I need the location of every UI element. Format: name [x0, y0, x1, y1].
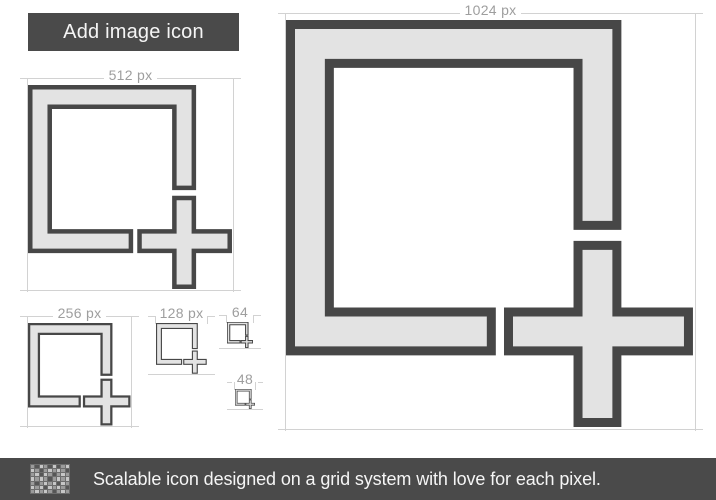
pixel-cell [44, 473, 47, 476]
pixel-cell [35, 486, 38, 489]
guide-line-bottom [20, 290, 241, 291]
pixel-cell [61, 469, 64, 472]
dimension-line [227, 382, 232, 383]
guide-line-bottom [148, 374, 215, 375]
pixel-cell [61, 473, 64, 476]
pixel-cell [40, 486, 43, 489]
pixel-cell [66, 482, 69, 485]
icon-preview-512: 512 px [28, 85, 233, 290]
guide-line-bottom [278, 429, 703, 430]
dimension-line [258, 382, 263, 383]
pixel-cell [57, 473, 60, 476]
pixel-cell [57, 486, 60, 489]
pixel-cell [44, 486, 47, 489]
pixel-cell [35, 469, 38, 472]
pixel-cell [48, 469, 51, 472]
guide-line-bottom [20, 426, 139, 427]
size-label-256: 256 px [58, 306, 102, 320]
crop-mark [207, 316, 208, 324]
pixel-cell [44, 465, 47, 468]
dimension-line [148, 316, 155, 317]
page-title: Add image icon [63, 21, 204, 44]
pixel-cell [66, 486, 69, 489]
pixel-cell [31, 486, 34, 489]
pixel-cell [53, 477, 56, 480]
pixel-cell [31, 490, 34, 493]
guide-line-right [695, 13, 696, 431]
icon-preview-48: 48 [235, 389, 255, 409]
pixel-cell [40, 473, 43, 476]
guide-line-bottom [227, 409, 263, 410]
dimension-line [521, 13, 703, 14]
artboard: Add image icon 512 px 1024 px [0, 0, 716, 500]
pixel-cell [66, 473, 69, 476]
guide-line-bottom [219, 348, 261, 349]
pixel-cell [31, 477, 34, 480]
pixel-cell [35, 490, 38, 493]
pixel-cell [35, 477, 38, 480]
dimension-label-row: 256 px [20, 306, 139, 320]
pixel-grid-icon [30, 464, 70, 494]
crop-mark [255, 382, 256, 390]
guide-line-right [131, 316, 132, 428]
size-label-64: 64 [232, 305, 248, 319]
pixel-cell [57, 482, 60, 485]
dimension-line [20, 316, 53, 317]
pixel-cell [53, 473, 56, 476]
add-image-icon-1024 [286, 20, 695, 429]
size-label-512: 512 px [109, 68, 153, 82]
pixel-cell [48, 486, 51, 489]
pixel-cell [57, 465, 60, 468]
pixel-cell [53, 469, 56, 472]
dimension-label-row: 1024 px [278, 3, 703, 17]
pixel-cell [35, 465, 38, 468]
pixel-cell [40, 490, 43, 493]
dimension-line [278, 13, 460, 14]
pixel-cell [53, 486, 56, 489]
pixel-cell [31, 473, 34, 476]
pixel-cell [31, 465, 34, 468]
add-image-icon-48 [235, 389, 255, 409]
dimension-line [208, 316, 215, 317]
pixel-cell [48, 473, 51, 476]
pixel-cell [66, 465, 69, 468]
icon-preview-64: 64 [227, 322, 253, 348]
pixel-cell [53, 482, 56, 485]
pixel-cell [31, 482, 34, 485]
dimension-line [157, 78, 241, 79]
pixel-cell [35, 473, 38, 476]
pixel-cell [61, 482, 64, 485]
pixel-cell [48, 490, 51, 493]
icon-preview-256: 256 px [28, 323, 131, 426]
dimension-line [106, 316, 139, 317]
dimension-label-row: 48 [227, 372, 263, 386]
add-image-icon-128 [156, 323, 207, 374]
pixel-cell [66, 469, 69, 472]
pixel-cell [48, 482, 51, 485]
pixel-cell [40, 482, 43, 485]
pixel-cell [61, 477, 64, 480]
icon-preview-128: 128 px [156, 323, 207, 374]
pixel-cell [53, 490, 56, 493]
add-image-icon-512 [28, 85, 233, 290]
title-bar: Add image icon [28, 13, 239, 51]
pixel-cell [40, 465, 43, 468]
footer-bar: Scalable icon designed on a grid system … [0, 458, 716, 500]
add-image-icon-64 [227, 322, 253, 348]
pixel-cell [35, 482, 38, 485]
pixel-cell [57, 477, 60, 480]
pixel-cell [53, 465, 56, 468]
crop-mark [253, 315, 254, 323]
pixel-cell [66, 490, 69, 493]
pixel-cell [44, 490, 47, 493]
pixel-cell [48, 465, 51, 468]
size-label-1024: 1024 px [465, 3, 517, 17]
icon-preview-1024: 1024 px [286, 20, 695, 429]
pixel-cell [61, 490, 64, 493]
pixel-cell [57, 490, 60, 493]
dimension-line [20, 78, 104, 79]
pixel-cell [57, 469, 60, 472]
footer-tagline: Scalable icon designed on a grid system … [93, 469, 601, 490]
size-label-128: 128 px [160, 306, 204, 320]
pixel-cell [40, 477, 43, 480]
dimension-label-row: 512 px [20, 68, 241, 82]
pixel-cell [66, 477, 69, 480]
pixel-cell [44, 482, 47, 485]
pixel-cell [61, 486, 64, 489]
dimension-label-row: 128 px [148, 306, 215, 320]
pixel-cell [44, 477, 47, 480]
pixel-cell [44, 469, 47, 472]
guide-line-right [233, 78, 234, 292]
pixel-cell [48, 477, 51, 480]
pixel-cell [31, 469, 34, 472]
pixel-cell [61, 465, 64, 468]
dimension-line [253, 315, 261, 316]
size-label-48: 48 [237, 372, 253, 386]
pixel-cell [40, 469, 43, 472]
add-image-icon-256 [28, 323, 131, 426]
